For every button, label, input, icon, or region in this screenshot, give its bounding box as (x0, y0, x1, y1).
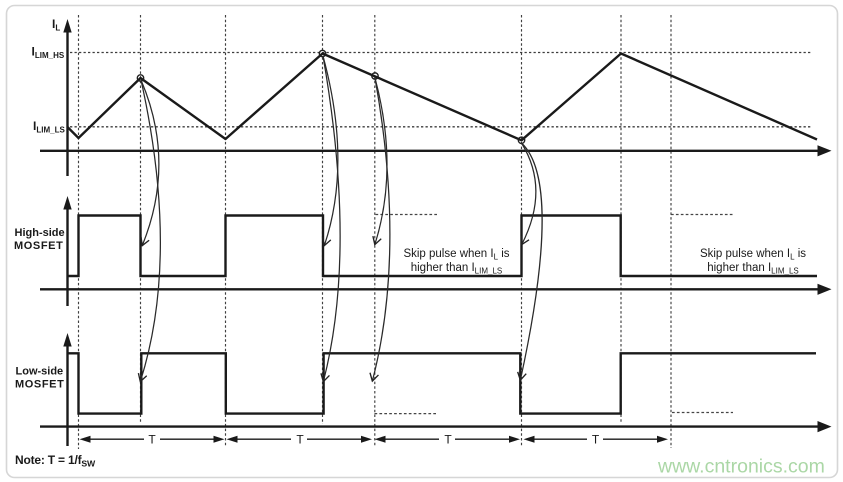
svg-text:T: T (592, 433, 600, 447)
svg-text:T: T (296, 433, 304, 447)
svg-text:T: T (148, 433, 156, 447)
svg-text:High-side: High-side (15, 227, 65, 239)
svg-text:MOSFET: MOSFET (14, 240, 63, 252)
svg-text:MOSFET: MOSFET (15, 379, 64, 391)
svg-text:Low-side: Low-side (16, 366, 64, 378)
svg-text:T: T (444, 433, 452, 447)
svg-text:www.cntronics.com: www.cntronics.com (657, 456, 825, 478)
